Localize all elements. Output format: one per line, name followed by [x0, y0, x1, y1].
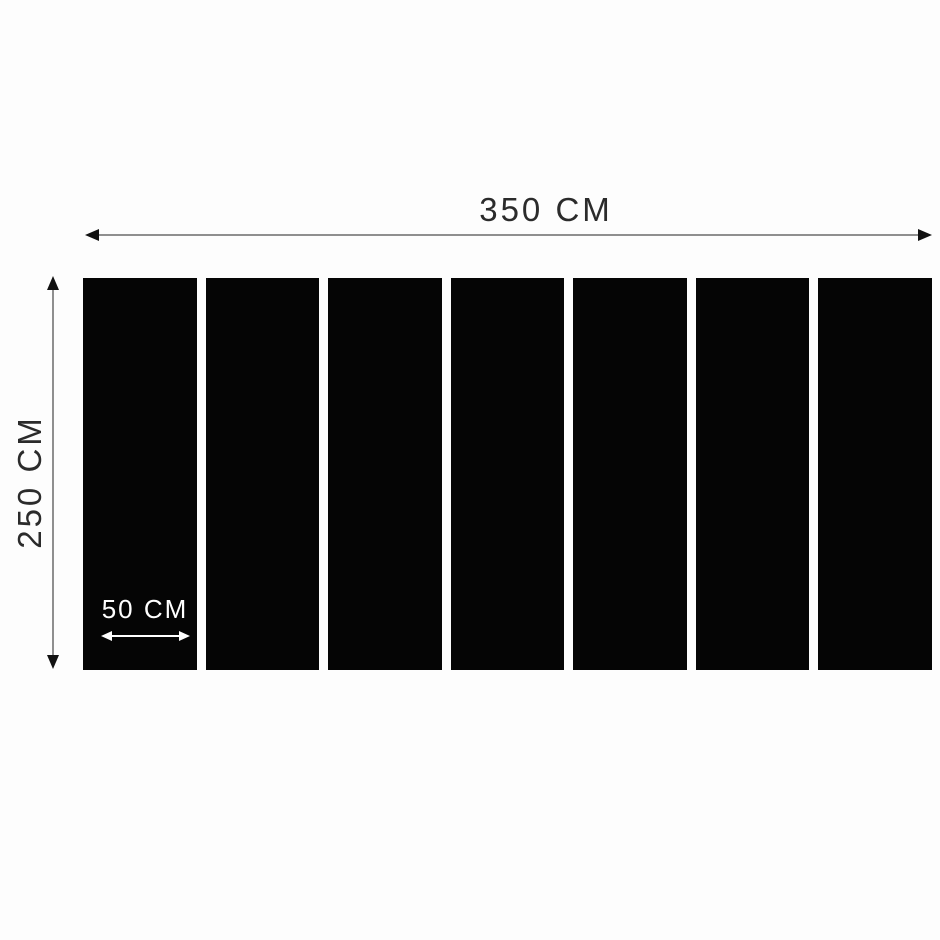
arrowhead-right-icon: [918, 229, 932, 241]
panel-4: [451, 278, 565, 670]
total-height-label: 250 CM: [10, 332, 50, 632]
arrowhead-down-icon: [47, 655, 59, 669]
panels: [83, 278, 932, 670]
panel-width-dimension-line: [104, 635, 187, 637]
arrowhead-up-icon: [47, 276, 59, 290]
panel-5: [573, 278, 687, 670]
panel-3: [328, 278, 442, 670]
small-arrowhead-left-icon: [101, 631, 112, 641]
height-dimension-line: [52, 282, 54, 659]
dimension-diagram: 350 CM 250 CM 50 CM: [0, 0, 940, 940]
small-arrowhead-right-icon: [179, 631, 190, 641]
total-width-label: 350 CM: [396, 191, 696, 229]
panel-7: [818, 278, 932, 670]
arrowhead-left-icon: [85, 229, 99, 241]
width-dimension-line: [95, 234, 925, 236]
panel-6: [696, 278, 810, 670]
panel-width-label: 50 CM: [85, 594, 205, 625]
panel-2: [206, 278, 320, 670]
